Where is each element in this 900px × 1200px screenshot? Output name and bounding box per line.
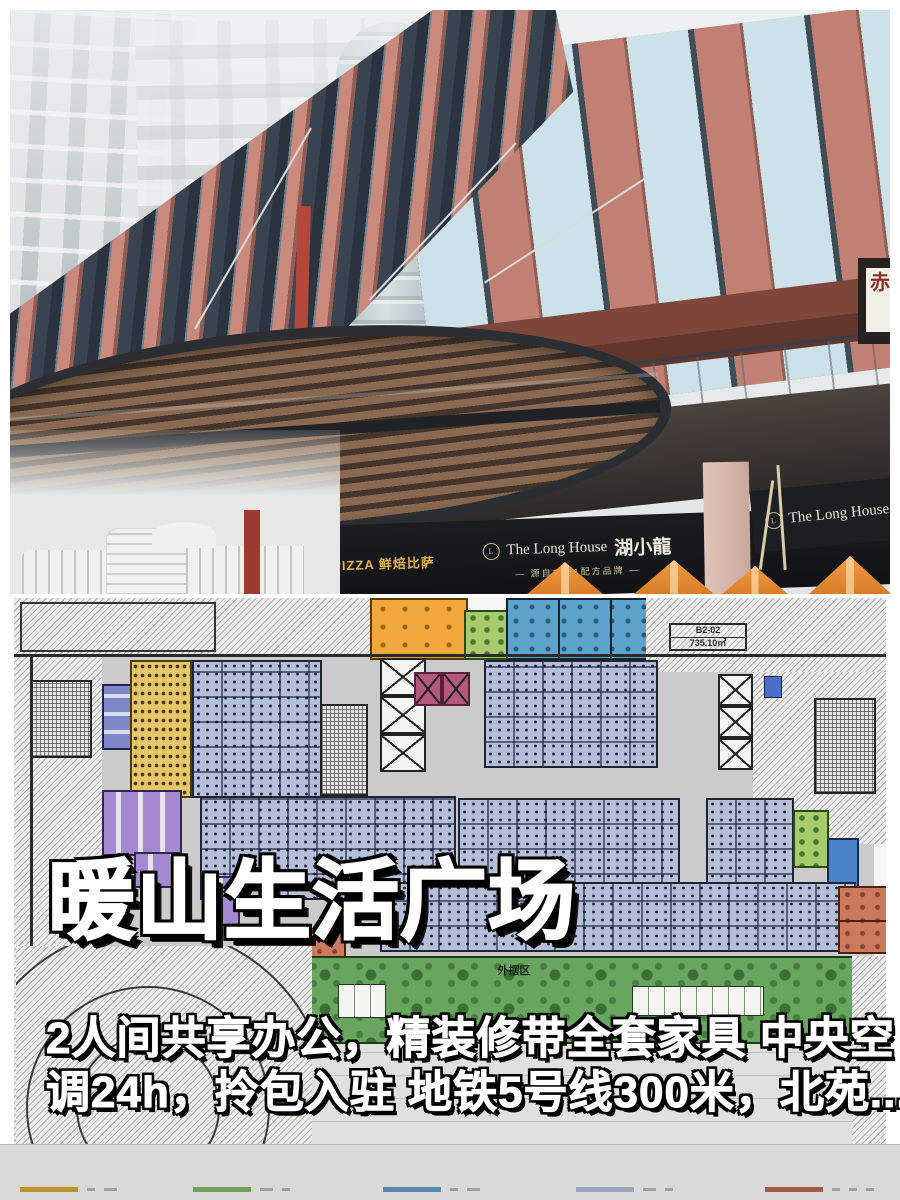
- elevator-shaft: [718, 674, 753, 706]
- outer-wall: [30, 656, 33, 946]
- unit-code: B2-02: [671, 625, 745, 638]
- legend-color-bar: [383, 1187, 441, 1192]
- building-photo: 赤 PIZZA 鲜焙比萨 L The Long House 湖小龍 — 源自19…: [10, 10, 890, 594]
- white-sculpture-cap: [152, 522, 216, 548]
- service-cores-pink: [414, 672, 470, 706]
- restroom-purple: [102, 790, 182, 856]
- side-banner-text: 赤: [866, 268, 890, 332]
- longhouse-right-name: The Long House: [788, 501, 890, 528]
- legend-item: [20, 1187, 117, 1192]
- green-pantry-room: [464, 610, 508, 660]
- side-banner-sign: 赤: [858, 258, 890, 344]
- post-canvas: 赤 PIZZA 鲜焙比萨 L The Long House 湖小龍 — 源自19…: [0, 0, 900, 1200]
- legend-label-mark: [104, 1188, 117, 1191]
- post-subtitle-line2: 调24h，拎包入驻 地铁5号线300米，北苑...: [46, 1056, 900, 1120]
- legend-label-mark: [282, 1188, 290, 1191]
- unit-label: B2-02 735.10㎡: [669, 623, 747, 651]
- elevator-shaft: [718, 706, 753, 738]
- legend-label-mark: [849, 1188, 857, 1191]
- elevator-shaft: [380, 734, 426, 772]
- elevator-shaft: [718, 738, 753, 770]
- unit-area: 735.10㎡: [671, 638, 745, 650]
- legend-label-mark: [866, 1188, 874, 1191]
- legend-item: [765, 1187, 874, 1192]
- legend-label-mark: [665, 1188, 673, 1191]
- pink-core: [414, 672, 442, 706]
- legend-label-mark: [450, 1188, 458, 1191]
- blue-meeting-rooms: [506, 598, 668, 660]
- outer-wall: [14, 654, 886, 657]
- small-blue-room: [764, 676, 782, 698]
- green-plant-room: [793, 810, 829, 868]
- legend-item: [193, 1187, 290, 1192]
- cubicle-office-block: [192, 660, 322, 798]
- legend-item: [576, 1187, 673, 1192]
- red-gate-pole: [244, 510, 260, 594]
- longhouse-name: The Long House: [506, 538, 607, 559]
- legend-color-bar: [576, 1187, 634, 1192]
- legend-color-bar: [20, 1187, 78, 1192]
- elevator-bank: [718, 674, 753, 770]
- legend-color-bar: [765, 1187, 823, 1192]
- outdoor-area-label: 外摆区: [474, 962, 554, 978]
- auditorium-seating: [130, 660, 192, 798]
- cubicle-office-block: [484, 660, 658, 768]
- legend-label-mark: [643, 1188, 656, 1191]
- salmon-room-pair: [838, 886, 886, 954]
- pizza-shop-sign: PIZZA 鲜焙比萨: [332, 551, 435, 574]
- plan-legend-band: [0, 1144, 900, 1200]
- longhouse-chinese-name: 湖小龍: [614, 531, 672, 560]
- legend-label-mark: [260, 1188, 273, 1191]
- post-title: 暖山生活广场: [48, 856, 576, 947]
- stair-core: [320, 704, 368, 796]
- orange-lounge-room: [370, 598, 468, 660]
- legend-color-bar: [193, 1187, 251, 1192]
- legend-label-mark: [467, 1188, 480, 1191]
- pink-core: [442, 672, 470, 706]
- legend-item: [383, 1187, 480, 1192]
- legend-label-mark: [87, 1188, 95, 1191]
- stair-core: [30, 680, 92, 758]
- longhouse-logo-icon: L: [482, 542, 500, 560]
- legend-label-mark: [832, 1188, 840, 1191]
- pink-column: [703, 462, 752, 594]
- hatched-room: [20, 602, 216, 652]
- stair-core: [814, 698, 876, 794]
- room-divider: [840, 920, 886, 922]
